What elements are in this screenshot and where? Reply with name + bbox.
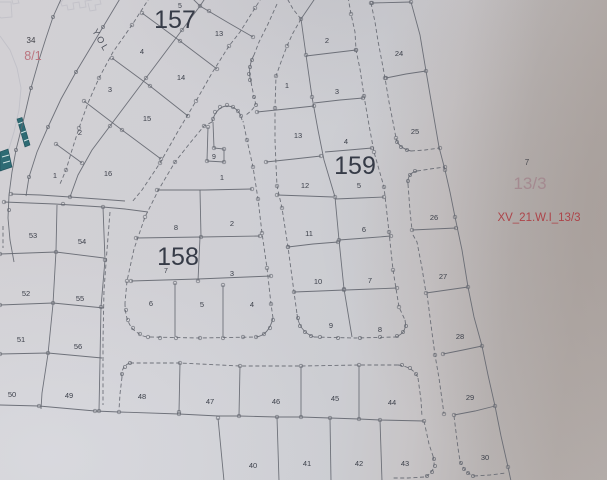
svg-text:13: 13: [215, 29, 223, 38]
svg-text:24: 24: [395, 49, 403, 58]
svg-text:3: 3: [230, 269, 234, 278]
svg-text:30: 30: [481, 453, 489, 462]
svg-text:157: 157: [154, 6, 196, 34]
svg-text:15: 15: [143, 114, 151, 123]
svg-text:159: 159: [334, 152, 376, 180]
svg-text:5: 5: [200, 300, 204, 309]
svg-text:5: 5: [357, 181, 361, 190]
svg-text:9: 9: [212, 154, 216, 161]
svg-text:2: 2: [230, 219, 234, 228]
svg-text:46: 46: [272, 397, 280, 406]
svg-text:2: 2: [78, 128, 82, 137]
svg-text:53: 53: [29, 231, 37, 240]
svg-text:16: 16: [104, 169, 112, 178]
svg-text:11: 11: [305, 229, 313, 238]
svg-text:3: 3: [335, 87, 339, 96]
svg-text:2: 2: [325, 36, 329, 45]
svg-text:4: 4: [344, 137, 348, 146]
svg-text:13/3: 13/3: [513, 174, 546, 193]
svg-text:14: 14: [177, 73, 185, 82]
svg-text:34: 34: [27, 36, 36, 45]
svg-text:7: 7: [525, 158, 530, 167]
svg-text:44: 44: [388, 398, 396, 407]
svg-text:8/1: 8/1: [24, 49, 41, 63]
svg-text:45: 45: [331, 394, 339, 403]
svg-text:55: 55: [76, 294, 84, 303]
svg-text:7: 7: [368, 276, 372, 285]
svg-text:27: 27: [439, 272, 447, 281]
svg-text:4: 4: [250, 300, 254, 309]
svg-text:50: 50: [8, 390, 16, 399]
svg-text:48: 48: [138, 392, 146, 401]
svg-text:7: 7: [164, 268, 168, 275]
svg-text:3: 3: [108, 85, 112, 94]
svg-text:1: 1: [53, 171, 57, 180]
svg-text:43: 43: [401, 459, 409, 468]
svg-text:8: 8: [378, 325, 382, 334]
svg-text:28: 28: [456, 332, 464, 341]
svg-text:47: 47: [206, 397, 214, 406]
svg-text:4: 4: [140, 47, 144, 56]
svg-text:25: 25: [411, 127, 419, 136]
svg-text:40: 40: [249, 461, 257, 470]
svg-text:6: 6: [149, 299, 153, 308]
svg-text:42: 42: [355, 459, 363, 468]
svg-text:1: 1: [220, 173, 224, 182]
svg-text:41: 41: [303, 459, 311, 468]
svg-text:54: 54: [78, 237, 86, 246]
svg-text:56: 56: [74, 342, 82, 351]
svg-text:6: 6: [362, 225, 366, 234]
svg-text:158: 158: [157, 243, 199, 271]
svg-text:51: 51: [17, 335, 25, 344]
svg-text:52: 52: [22, 289, 30, 298]
svg-text:YOL: YOL: [90, 27, 111, 54]
svg-text:12: 12: [301, 181, 309, 190]
svg-text:13: 13: [294, 131, 302, 140]
svg-text:10: 10: [314, 277, 322, 286]
svg-text:8: 8: [174, 223, 178, 232]
svg-text:49: 49: [65, 391, 73, 400]
svg-text:9: 9: [329, 321, 333, 330]
svg-text:26: 26: [430, 213, 438, 222]
svg-text:XV_21.W.I_13/3: XV_21.W.I_13/3: [497, 212, 580, 224]
svg-text:1: 1: [285, 81, 289, 90]
svg-text:29: 29: [466, 393, 474, 402]
